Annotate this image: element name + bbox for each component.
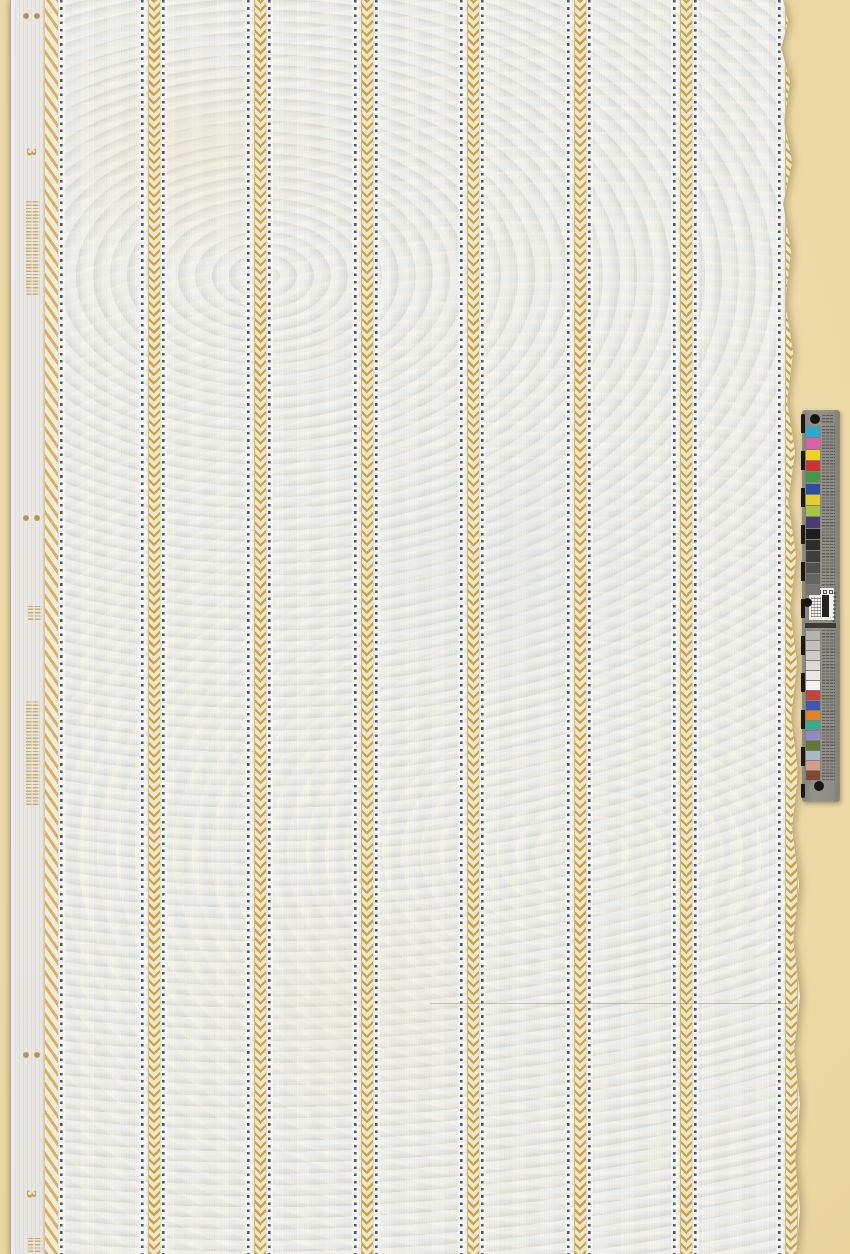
- selvedge-pinhole: [23, 13, 29, 19]
- selvedge-pinhole: [23, 515, 29, 521]
- selvedge-makers-inscription: [28, 606, 42, 620]
- resolution-square: [823, 590, 827, 594]
- target-script-logo: [832, 592, 836, 622]
- blue-dotted-line: [692, 0, 699, 1254]
- blue-dotted-line: [245, 0, 252, 1254]
- gray-step-patch: [806, 585, 820, 595]
- color-patch: [806, 438, 820, 448]
- color-patch: [806, 484, 820, 494]
- color-patch: [806, 517, 820, 527]
- gray-step-patch: [806, 551, 820, 561]
- selvedge-pinhole: [23, 1052, 29, 1058]
- gray-step-patch: [806, 563, 820, 573]
- color-patch: [806, 450, 820, 460]
- blue-dotted-line: [776, 0, 783, 1254]
- calibration-target: [802, 410, 840, 802]
- gray-step-patch: [806, 681, 820, 690]
- gray-step-patch: [806, 540, 820, 550]
- color-patch: [806, 495, 820, 505]
- gray-step-patch: [806, 651, 820, 660]
- blue-dotted-line: [671, 0, 678, 1254]
- color-patch: [806, 461, 820, 471]
- fiducial-circle: [814, 781, 824, 791]
- fiducial-circle: [810, 414, 820, 424]
- color-patch: [806, 771, 820, 780]
- selvedge-makers-inscription: [26, 200, 40, 295]
- fiducial-circle: [803, 598, 812, 607]
- photo-scene: 33: [0, 0, 850, 1254]
- blue-dotted-line: [266, 0, 273, 1254]
- blue-dotted-line: [458, 0, 465, 1254]
- color-patch: [806, 721, 820, 730]
- blue-dotted-line: [586, 0, 593, 1254]
- blue-dotted-line: [139, 0, 146, 1254]
- gray-step-patch: [806, 631, 820, 640]
- blue-dotted-line: [373, 0, 380, 1254]
- patch-label-microtext: [822, 415, 833, 423]
- blue-dotted-line: [479, 0, 486, 1254]
- blue-dotted-line: [352, 0, 359, 1254]
- gray-step-patch: [806, 641, 820, 650]
- color-patch: [806, 711, 820, 720]
- paper-seam-line: [430, 1003, 793, 1004]
- gray-step-patch: [806, 529, 820, 539]
- selvedge-pinhole: [34, 515, 40, 521]
- patch-label-microtext: [822, 426, 835, 586]
- color-patch: [806, 731, 820, 740]
- selvedge-pinhole: [34, 13, 40, 19]
- color-patch: [806, 427, 820, 437]
- resolution-grid: [811, 597, 821, 617]
- selvedge-pinhole: [34, 1052, 40, 1058]
- wallpaper-sample: 33: [10, 0, 800, 1254]
- color-patch: [806, 761, 820, 770]
- selvedge-pattern-number: 3: [25, 1190, 37, 1198]
- density-bar: [822, 595, 829, 617]
- color-patch: [806, 472, 820, 482]
- color-patch: [806, 691, 820, 700]
- blue-dotted-line: [58, 0, 65, 1254]
- selvedge-makers-inscription: [26, 700, 40, 805]
- gray-step-patch: [806, 661, 820, 670]
- wallpaper-sheet: 33: [10, 0, 800, 1254]
- selvedge-strip: 33: [10, 0, 45, 1254]
- color-patch: [806, 741, 820, 750]
- color-patch: [806, 506, 820, 516]
- gray-step-patch: [806, 671, 820, 680]
- patch-label-microtext: [822, 630, 835, 782]
- color-patch: [806, 751, 820, 760]
- gold-chevron-stripe: [785, 0, 798, 1254]
- blue-dotted-line: [160, 0, 167, 1254]
- selvedge-pattern-number: 3: [25, 148, 37, 156]
- selvedge-makers-inscription: [28, 1238, 42, 1252]
- gray-step-patch: [806, 574, 820, 584]
- resolution-square: [829, 590, 833, 594]
- target-divider-bar: [805, 623, 836, 628]
- blue-dotted-line: [565, 0, 572, 1254]
- color-patch: [806, 701, 820, 710]
